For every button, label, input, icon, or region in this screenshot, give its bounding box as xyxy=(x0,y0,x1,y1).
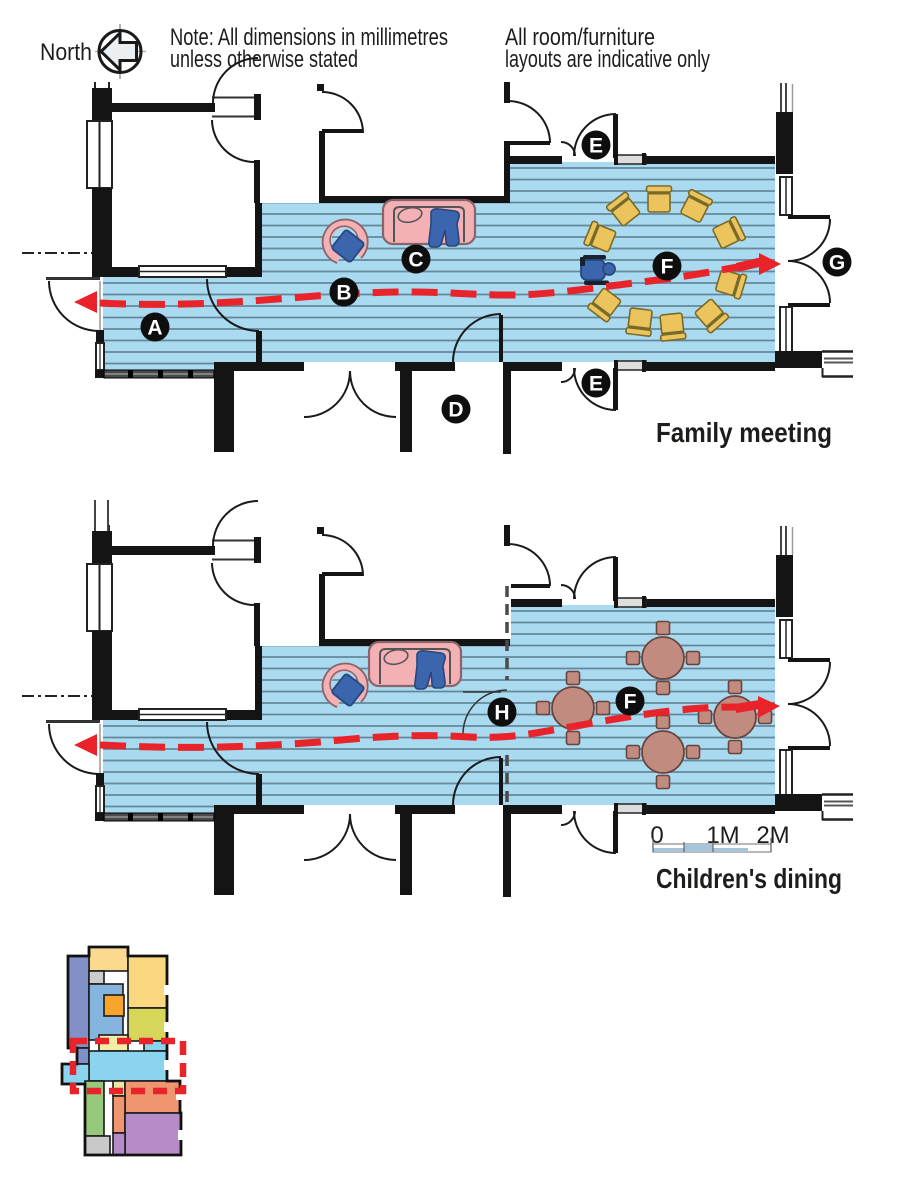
svg-text:C: C xyxy=(408,249,423,272)
svg-text:F: F xyxy=(661,256,674,279)
svg-text:Children's dining: Children's dining xyxy=(656,863,842,894)
svg-text:E: E xyxy=(589,135,603,158)
svg-text:unless otherwise stated: unless otherwise stated xyxy=(170,46,358,73)
svg-text:E: E xyxy=(589,373,603,396)
svg-text:H: H xyxy=(494,702,509,725)
svg-text:G: G xyxy=(829,252,845,275)
svg-text:D: D xyxy=(448,399,463,422)
svg-text:F: F xyxy=(624,691,637,714)
svg-text:North: North xyxy=(40,39,92,66)
svg-text:B: B xyxy=(336,282,351,305)
svg-text:layouts are indicative only: layouts are indicative only xyxy=(505,46,710,73)
svg-text:Family meeting: Family meeting xyxy=(656,417,832,448)
svg-text:A: A xyxy=(147,317,162,340)
